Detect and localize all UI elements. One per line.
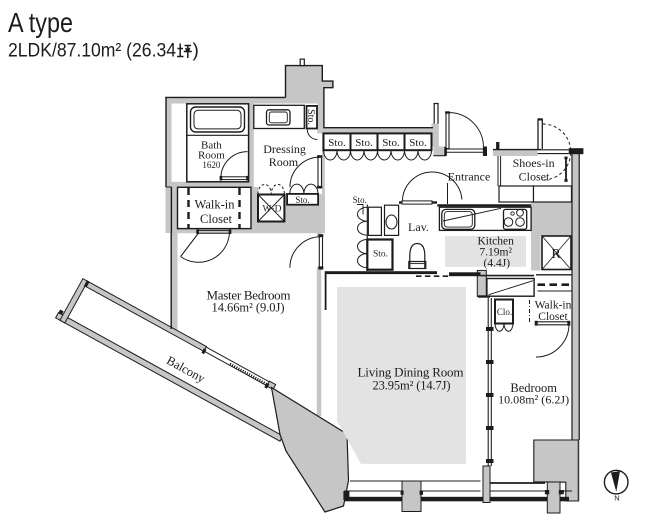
svg-text:1620: 1620 — [202, 160, 221, 170]
svg-text:Living Dining Room: Living Dining Room — [358, 364, 464, 379]
svg-text:Sto.: Sto. — [373, 250, 388, 260]
svg-text:Sto.: Sto. — [353, 195, 367, 205]
svg-text:Room: Room — [269, 155, 299, 169]
svg-text:Entrance: Entrance — [448, 169, 491, 183]
svg-text:R: R — [551, 247, 561, 262]
svg-text:N: N — [614, 494, 619, 503]
svg-text:Lav.: Lav. — [408, 220, 429, 234]
svg-text:Shoes-in: Shoes-in — [513, 156, 555, 170]
svg-text:(4.4J): (4.4J) — [484, 257, 511, 269]
svg-text:23.95m² (14.7J): 23.95m² (14.7J) — [373, 379, 451, 393]
svg-text:Sto.: Sto. — [328, 137, 346, 149]
svg-text:Sto.: Sto. — [305, 109, 316, 125]
svg-text:10.08m² (6.2J): 10.08m² (6.2J) — [498, 393, 569, 407]
svg-text:Sto.: Sto. — [355, 137, 373, 149]
svg-text:Closet: Closet — [519, 169, 550, 183]
svg-text:W·D: W·D — [263, 205, 282, 215]
svg-text:Closet: Closet — [200, 212, 232, 226]
svg-text:Closet: Closet — [538, 311, 568, 323]
svg-text:Sto.: Sto. — [295, 195, 309, 205]
svg-text:14.66m² (9.0J): 14.66m² (9.0J) — [212, 300, 285, 314]
svg-text:A type: A type — [8, 7, 73, 38]
svg-text:Sto.: Sto. — [382, 137, 400, 149]
svg-text:Walk-in: Walk-in — [535, 300, 572, 312]
svg-text:Clo.: Clo. — [497, 307, 512, 317]
svg-text:2LDK/87.10m² (26.34: 2LDK/87.10m² (26.34 — [8, 41, 176, 62]
svg-text:Sto.: Sto. — [409, 137, 427, 149]
svg-text:Dressing: Dressing — [263, 142, 306, 156]
svg-text:): ) — [193, 41, 199, 62]
svg-text:Walk-in: Walk-in — [195, 198, 236, 212]
